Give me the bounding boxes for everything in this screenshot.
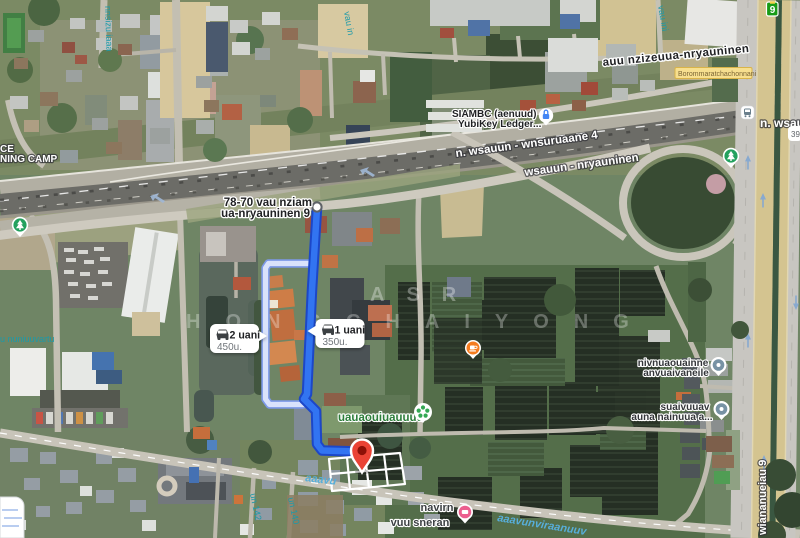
- svg-text:anvuaivaneile: anvuaivaneile: [643, 368, 709, 379]
- svg-text:1 uani: 1 uani: [335, 325, 366, 337]
- svg-text:NING CAMP: NING CAMP: [0, 154, 58, 165]
- svg-text:350u.: 350u.: [323, 337, 348, 348]
- svg-text:wiananueiau 9: wiananueiau 9: [757, 460, 769, 536]
- svg-text:YubiKey Ledger...: YubiKey Ledger...: [458, 119, 542, 130]
- svg-text:ASR: ASR: [370, 284, 478, 306]
- svg-text:auna nainuua a...: auna nainuua a...: [631, 412, 712, 423]
- svg-text:2 uani: 2 uani: [230, 330, 261, 342]
- svg-text:nnsizu iaaa: nnsizu iaaa: [103, 6, 115, 52]
- svg-text:vuu sneran: vuu sneran: [391, 517, 450, 529]
- svg-text:uauaouiuauuuu: uauaouiuauuuu: [338, 412, 424, 424]
- svg-text:navirn: navirn: [420, 502, 453, 514]
- svg-text:ua-nryauninen 9: ua-nryauninen 9: [221, 208, 310, 220]
- svg-text:39: 39: [791, 130, 800, 139]
- svg-text:9: 9: [770, 5, 776, 16]
- svg-text:Borommaratchachonnani: Borommaratchachonnani: [678, 71, 757, 78]
- svg-text:450u.: 450u.: [217, 342, 242, 353]
- svg-text:u nuniuuvartu: u nuniuuvartu: [0, 334, 55, 344]
